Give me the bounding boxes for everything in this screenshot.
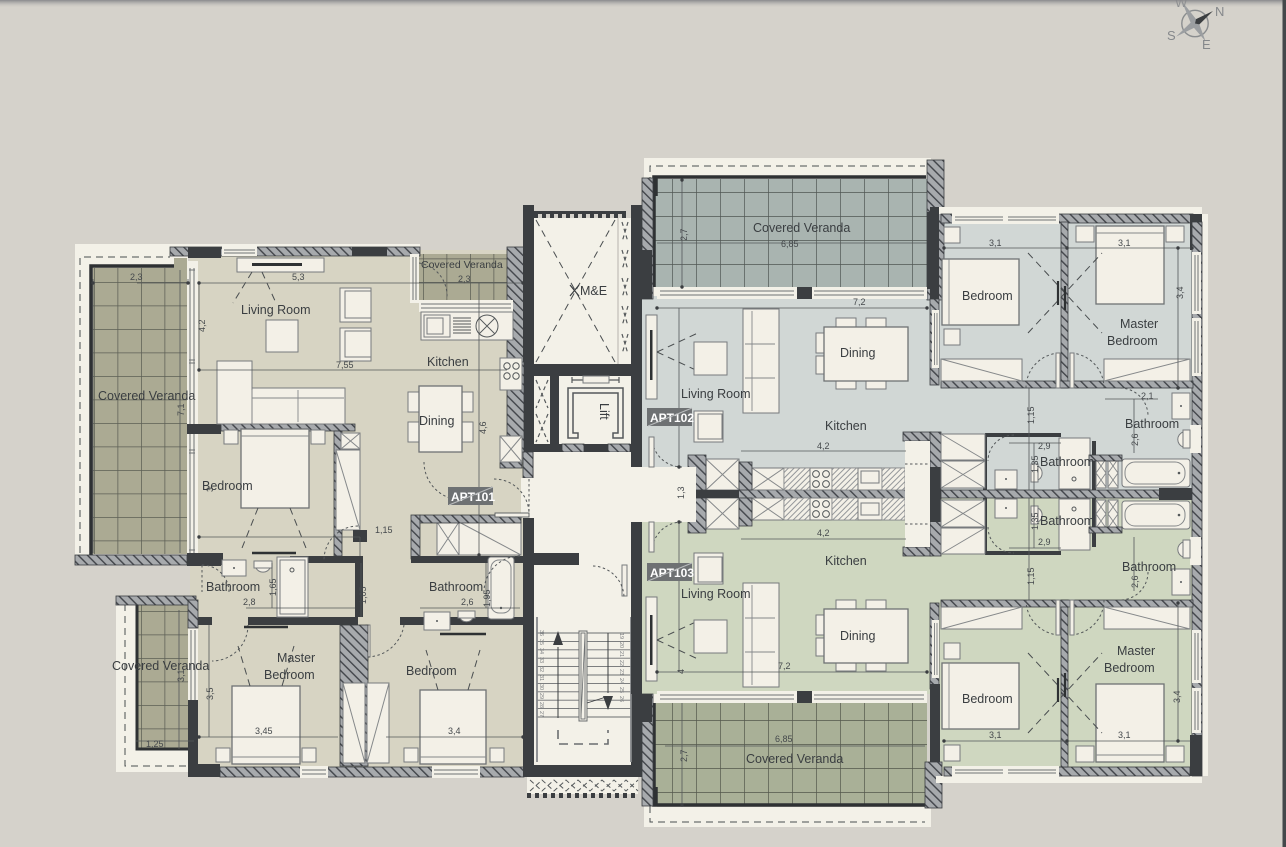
svg-text:Living Room: Living Room — [681, 387, 750, 401]
svg-text:Bedroom: Bedroom — [1107, 334, 1158, 348]
svg-text:2,9: 2,9 — [1038, 441, 1051, 451]
svg-text:S: S — [1167, 28, 1176, 43]
svg-text:27: 27 — [538, 711, 544, 717]
svg-text:Dining: Dining — [419, 414, 454, 428]
svg-text:3,5: 3,5 — [205, 687, 215, 700]
svg-text:Bathroom: Bathroom — [429, 580, 483, 594]
svg-text:2,9: 2,9 — [1038, 537, 1051, 547]
svg-text:28: 28 — [538, 702, 544, 708]
svg-text:Bedroom: Bedroom — [962, 692, 1013, 706]
svg-text:1,25: 1,25 — [146, 739, 164, 749]
svg-text:7,55: 7,55 — [336, 360, 354, 370]
svg-text:31: 31 — [538, 675, 544, 681]
svg-text:32: 32 — [538, 666, 544, 672]
svg-text:4,6: 4,6 — [478, 421, 488, 434]
svg-text:19: 19 — [618, 633, 624, 639]
svg-text:Bathroom: Bathroom — [1122, 560, 1176, 574]
svg-text:E: E — [1202, 37, 1211, 52]
svg-text:Kitchen: Kitchen — [825, 419, 867, 433]
svg-text:1,35: 1,35 — [1030, 455, 1040, 473]
svg-text:Master: Master — [1120, 317, 1158, 331]
svg-text:24: 24 — [618, 678, 624, 684]
svg-text:Covered Veranda: Covered Veranda — [753, 221, 850, 235]
svg-text:36: 36 — [538, 630, 544, 636]
svg-text:2,7: 2,7 — [679, 749, 689, 762]
svg-text:23: 23 — [618, 669, 624, 675]
svg-text:Living Room: Living Room — [241, 303, 310, 317]
svg-text:7,2: 7,2 — [778, 661, 791, 671]
svg-text:Dining: Dining — [840, 629, 875, 643]
svg-text:Bedroom: Bedroom — [962, 289, 1013, 303]
svg-text:2,7: 2,7 — [679, 228, 689, 241]
svg-text:Bedroom: Bedroom — [1104, 661, 1155, 675]
svg-text:21: 21 — [618, 651, 624, 657]
svg-text:3,4: 3,4 — [1172, 690, 1182, 703]
svg-text:5,3: 5,3 — [292, 272, 305, 282]
svg-text:Living Room: Living Room — [681, 587, 750, 601]
svg-text:Bedroom: Bedroom — [406, 664, 457, 678]
svg-text:35: 35 — [538, 639, 544, 645]
svg-text:2,1: 2,1 — [1141, 391, 1154, 401]
svg-text:1,15: 1,15 — [1026, 567, 1036, 585]
svg-text:4: 4 — [676, 669, 686, 674]
svg-text:6,85: 6,85 — [775, 734, 793, 744]
svg-text:3,4: 3,4 — [448, 726, 461, 736]
svg-text:34: 34 — [538, 648, 544, 654]
svg-text:Covered Veranda: Covered Veranda — [98, 389, 195, 403]
svg-text:4,2: 4,2 — [817, 528, 830, 538]
svg-text:3,1: 3,1 — [989, 730, 1002, 740]
svg-text:2,6: 2,6 — [1130, 433, 1140, 446]
svg-text:3,1: 3,1 — [1118, 730, 1131, 740]
svg-text:2,6: 2,6 — [1130, 575, 1140, 588]
svg-text:3,45: 3,45 — [255, 726, 273, 736]
svg-text:Covered Veranda: Covered Veranda — [746, 752, 843, 766]
svg-text:4,2: 4,2 — [197, 319, 207, 332]
svg-text:7,1: 7,1 — [176, 403, 186, 416]
svg-text:Dining: Dining — [840, 346, 875, 360]
svg-text:Kitchen: Kitchen — [427, 355, 469, 369]
svg-text:3,4: 3,4 — [1175, 286, 1185, 299]
svg-text:Master: Master — [1117, 644, 1155, 658]
svg-text:3,1: 3,1 — [989, 238, 1002, 248]
svg-text:25: 25 — [618, 687, 624, 693]
svg-text:29: 29 — [538, 693, 544, 699]
svg-text:2,3: 2,3 — [130, 272, 143, 282]
svg-text:Bedroom: Bedroom — [202, 479, 253, 493]
svg-text:Bathroom: Bathroom — [1040, 514, 1094, 528]
svg-text:1,3: 1,3 — [676, 486, 686, 499]
svg-text:Bathroom: Bathroom — [1040, 455, 1094, 469]
svg-text:30: 30 — [538, 684, 544, 690]
svg-text:Bathroom: Bathroom — [206, 580, 260, 594]
svg-text:1,35: 1,35 — [1030, 512, 1040, 530]
svg-text:Covered Veranda: Covered Veranda — [112, 659, 209, 673]
svg-text:2,6: 2,6 — [461, 597, 474, 607]
svg-text:26: 26 — [618, 696, 624, 702]
svg-text:2,8: 2,8 — [243, 597, 256, 607]
svg-text:33: 33 — [538, 657, 544, 663]
svg-text:Bathroom: Bathroom — [1125, 417, 1179, 431]
svg-text:2,3: 2,3 — [458, 274, 471, 284]
svg-text:Kitchen: Kitchen — [825, 554, 867, 568]
svg-text:20: 20 — [618, 642, 624, 648]
svg-text:Covered Veranda: Covered Veranda — [421, 259, 503, 271]
svg-text:7,2: 7,2 — [853, 297, 866, 307]
svg-text:22: 22 — [618, 660, 624, 666]
svg-text:Bedroom: Bedroom — [264, 668, 315, 682]
svg-text:Lift: Lift — [597, 403, 611, 420]
svg-text:1,15: 1,15 — [1026, 406, 1036, 424]
svg-text:1,65: 1,65 — [268, 578, 278, 596]
svg-text:3,1: 3,1 — [1118, 238, 1131, 248]
svg-text:Master: Master — [277, 651, 315, 665]
svg-text:M&E: M&E — [580, 284, 607, 298]
svg-text:1,15: 1,15 — [375, 525, 393, 535]
svg-text:1,95: 1,95 — [482, 589, 492, 607]
svg-text:1,05: 1,05 — [358, 586, 368, 604]
svg-text:4,2: 4,2 — [817, 441, 830, 451]
svg-text:6,85: 6,85 — [781, 239, 799, 249]
